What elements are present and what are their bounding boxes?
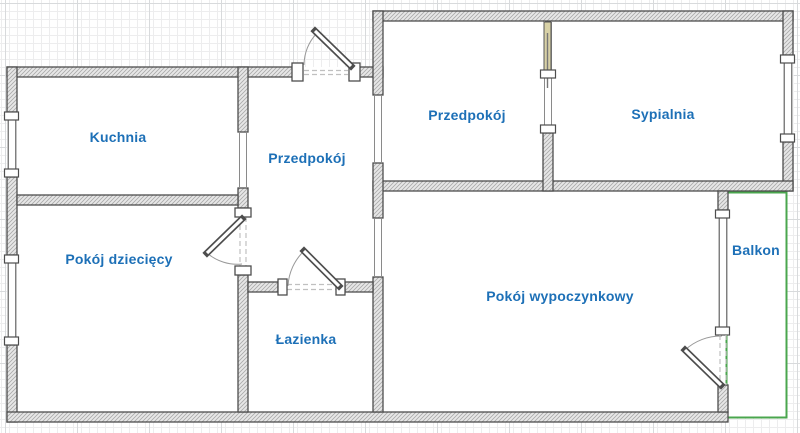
children-door-jamb-bottom — [235, 266, 251, 275]
wall-bedroom-divider[interactable] — [543, 133, 553, 191]
floorplan-canvas: Kuchnia Przedpokój Przedpokój Sypialnia … — [0, 0, 800, 433]
wall-bottom[interactable] — [7, 412, 728, 422]
wall-left-a[interactable] — [7, 67, 17, 112]
wall-central-b[interactable] — [373, 163, 383, 218]
wall-right-a[interactable] — [783, 11, 793, 55]
bedroom-window[interactable] — [781, 55, 795, 142]
wall-kitchen-hall-b[interactable] — [238, 188, 248, 208]
wall-central-a[interactable] — [373, 11, 383, 95]
wall-kitchen-children[interactable] — [17, 195, 238, 205]
balcony-window[interactable] — [716, 210, 730, 335]
kitchen-window[interactable] — [5, 112, 19, 177]
room-label-balkon[interactable]: Balkon — [732, 242, 780, 258]
room-label-kuchnia[interactable]: Kuchnia — [90, 129, 147, 145]
bedroom-door-hinge — [541, 70, 556, 78]
wall-kitchen-hall-a[interactable] — [238, 67, 248, 132]
room-label-pokoj-wypoczynkowy[interactable]: Pokój wypoczynkowy — [486, 288, 634, 304]
wall-top-left[interactable] — [7, 67, 296, 77]
wall-bathroom-left[interactable] — [238, 275, 248, 412]
wall-livingroom-right-b[interactable] — [718, 385, 728, 412]
bedroom-door-jamb — [541, 125, 556, 133]
wall-central-c[interactable] — [373, 277, 383, 412]
bathroom-door-jamb-left — [278, 279, 287, 295]
wall-bathroom-top-a[interactable] — [248, 282, 278, 292]
floorplan-drawing — [0, 0, 800, 433]
balcony[interactable] — [727, 193, 787, 418]
room-label-przedpokoj-center[interactable]: Przedpokój — [268, 150, 345, 166]
room-label-lazienka[interactable]: Łazienka — [276, 331, 337, 347]
wall-left-c[interactable] — [7, 345, 17, 422]
balcony-outline[interactable] — [727, 193, 787, 418]
entrance-door-arc — [304, 33, 317, 65]
room-label-pokoj-dzieciecy[interactable]: Pokój dziecięcy — [65, 251, 172, 267]
children-room-window[interactable] — [5, 255, 19, 345]
entrance-door-jamb-left — [292, 63, 303, 81]
wall-livingroom-right-a[interactable] — [718, 191, 728, 210]
room-label-sypialnia[interactable]: Sypialnia — [631, 106, 694, 122]
wall-mid-horizontal[interactable] — [373, 181, 793, 191]
room-label-przedpokoj-north[interactable]: Przedpokój — [428, 107, 505, 123]
wall-bathroom-top-b[interactable] — [345, 282, 373, 292]
wall-left-b[interactable] — [7, 177, 17, 255]
wall-top-right[interactable] — [373, 11, 793, 21]
